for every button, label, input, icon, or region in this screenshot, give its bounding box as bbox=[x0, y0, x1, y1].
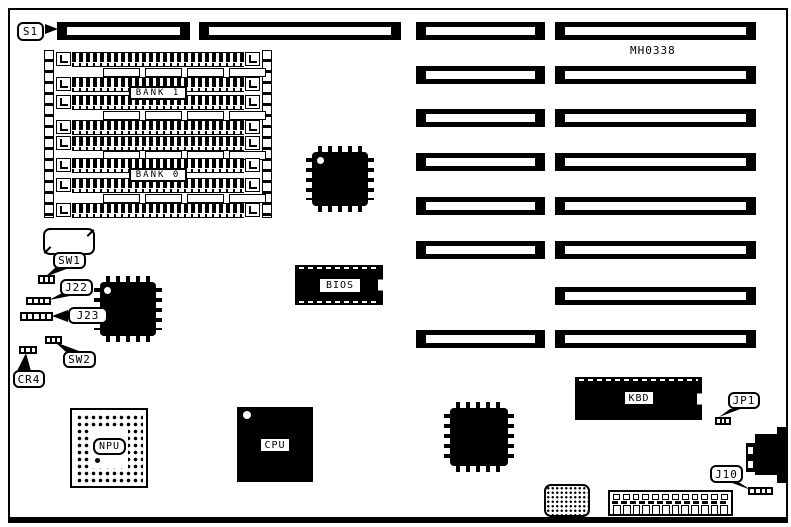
motherboard-diagram: MH0338 BANK 1 BANK 0 bbox=[0, 0, 791, 527]
bank0-label: BANK 0 bbox=[129, 168, 187, 182]
callout-s1: S1 bbox=[17, 22, 44, 41]
callout-j23: J23 bbox=[68, 307, 108, 324]
callout-sw2: SW2 bbox=[63, 351, 96, 368]
simm-rail-left bbox=[44, 50, 54, 218]
simm-bank-area: BANK 1 BANK 0 bbox=[44, 50, 272, 218]
connector-j10 bbox=[748, 487, 773, 495]
pin1-dot bbox=[243, 411, 251, 419]
simm-socket bbox=[56, 120, 260, 134]
simm-socket bbox=[56, 52, 260, 66]
expansion-slot bbox=[555, 66, 756, 84]
expansion-slot bbox=[555, 22, 756, 40]
expansion-slot bbox=[555, 241, 756, 259]
expansion-slot bbox=[416, 66, 545, 84]
simm-spacer-row bbox=[103, 111, 266, 120]
expansion-slot bbox=[416, 22, 545, 40]
connector-j23 bbox=[20, 312, 53, 321]
connector-cr4 bbox=[19, 346, 37, 354]
chip-notch bbox=[697, 393, 702, 404]
simm-socket bbox=[56, 203, 260, 217]
part-number-text: MH0338 bbox=[630, 44, 676, 57]
expansion-slot bbox=[555, 153, 756, 171]
simm-spacer-row bbox=[103, 194, 266, 203]
callout-j22: J22 bbox=[60, 279, 93, 296]
keyboard-din-connector bbox=[744, 425, 789, 485]
connector-j22 bbox=[26, 297, 51, 305]
pin1-dot bbox=[317, 157, 324, 164]
expansion-slot bbox=[416, 109, 545, 127]
expansion-slot bbox=[555, 109, 756, 127]
din-pin bbox=[746, 445, 755, 456]
connector-sw2 bbox=[45, 336, 62, 344]
kbd-label: KBD bbox=[623, 390, 655, 406]
qfp-chip bbox=[306, 146, 374, 212]
expansion-slot bbox=[555, 330, 756, 348]
callout-jp1: JP1 bbox=[728, 392, 760, 409]
expansion-slot bbox=[555, 197, 756, 215]
connector-jp1 bbox=[715, 417, 731, 425]
rounded-component-outline bbox=[43, 228, 95, 255]
expansion-slot bbox=[57, 22, 190, 40]
expansion-slot bbox=[555, 287, 756, 305]
expansion-slot bbox=[416, 241, 545, 259]
qfp-chip bbox=[444, 402, 514, 472]
connector-sw1 bbox=[38, 275, 55, 284]
expansion-slot bbox=[416, 330, 545, 348]
expansion-slot bbox=[199, 22, 401, 40]
pin1-dot bbox=[104, 287, 111, 294]
simm-spacer-row bbox=[103, 68, 266, 77]
bios-label: BIOS bbox=[318, 277, 362, 294]
cpu-label: CPU bbox=[259, 437, 291, 453]
simm-socket bbox=[56, 136, 260, 150]
expansion-slot bbox=[416, 197, 545, 215]
chip-notch bbox=[378, 280, 383, 291]
callout-cr4: CR4 bbox=[13, 370, 45, 388]
din-pin bbox=[746, 459, 755, 470]
bank1-label: BANK 1 bbox=[129, 86, 187, 100]
expansion-slot bbox=[416, 153, 545, 171]
callout-sw1: SW1 bbox=[53, 252, 86, 269]
orientation-dot bbox=[95, 458, 100, 463]
crystal-component bbox=[544, 484, 590, 517]
npu-label: NPU bbox=[93, 438, 126, 455]
callout-j10: J10 bbox=[710, 465, 743, 483]
power-connector bbox=[608, 490, 733, 516]
